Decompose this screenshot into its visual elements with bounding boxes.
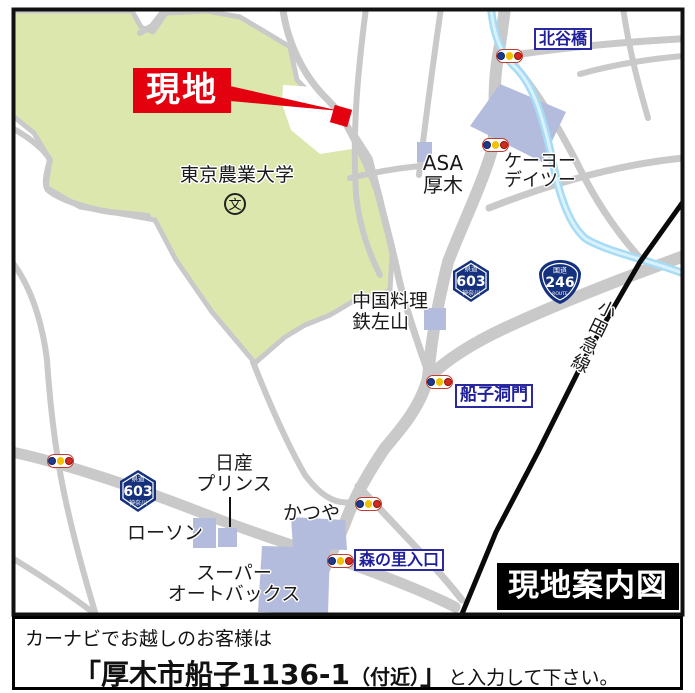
asa-label-line1: ASA xyxy=(403,153,483,175)
footer-address-paren: （付近） xyxy=(350,665,420,689)
svg-text:246: 246 xyxy=(545,275,574,291)
svg-text:603: 603 xyxy=(123,484,152,500)
china-restaurant-label: 中国料理 鉄左山 xyxy=(352,291,428,332)
katsuya-label: かつや xyxy=(283,503,340,524)
footer-address-line: 「厚木市船子1136-1（付近）」と入力して下さい。 xyxy=(73,653,680,693)
nissan-prince-label: 日産 プリンス xyxy=(196,453,272,494)
traffic-light-icon xyxy=(426,375,453,389)
traffic-light-icon xyxy=(355,497,382,511)
svg-text:603: 603 xyxy=(456,274,485,290)
footer-line1: カーナビでお越しのお客様は xyxy=(25,624,680,651)
asa-label-line2: 厚木 xyxy=(403,175,483,197)
nissan-prince-line1: 日産 xyxy=(196,453,272,474)
funako-domon-label: 船子洞門 xyxy=(455,384,533,408)
route-603-shield-icon: 県道 603 神奈川 xyxy=(451,259,491,303)
nissan-prince-line2: プリンス xyxy=(196,474,272,495)
route-603-shield-icon: 県道 603 神奈川 xyxy=(118,469,158,513)
morinosato-label: 森の里入口 xyxy=(354,549,444,571)
autobacs-line2: オートバックス xyxy=(166,584,302,605)
china-restaurant-line2: 鉄左山 xyxy=(352,312,428,333)
svg-text:県道: 県道 xyxy=(465,264,479,273)
route-246-shield-icon: 国道 246 ROUTE xyxy=(538,259,582,305)
traffic-light-icon xyxy=(327,554,354,568)
site-callout: 現地 xyxy=(133,68,231,113)
traffic-light-icon xyxy=(482,138,509,152)
university-label: 東京農業大学 xyxy=(175,165,299,186)
kitayabashi-label: 北谷橋 xyxy=(534,28,592,50)
china-restaurant-line1: 中国料理 xyxy=(352,291,428,312)
autobacs-label: スーパー オートバックス xyxy=(166,563,302,604)
nissan-building xyxy=(218,528,237,547)
svg-text:ROUTE: ROUTE xyxy=(552,291,568,297)
traffic-light-icon xyxy=(496,49,523,63)
svg-text:県道: 県道 xyxy=(132,474,146,483)
keiyo-label-line1: ケーヨー xyxy=(494,152,586,171)
asa-label: ASA 厚木 xyxy=(403,153,483,196)
footer-address-open: 「厚木市船子1136-1 xyxy=(73,658,350,691)
footer-address-suffix: と入力して下さい。 xyxy=(448,667,618,689)
traffic-light-icon xyxy=(47,454,74,468)
lawson-label: ローソン xyxy=(127,523,203,544)
keiyo-label: ケーヨー デイツー xyxy=(494,152,586,191)
page: { "map": { "site_callout": "現地", "legend… xyxy=(0,0,695,693)
school-symbol-icon: 文 xyxy=(224,193,246,215)
footer-address-close: 」 xyxy=(420,658,448,691)
nissan-pointer-line xyxy=(229,497,231,527)
map-legend-title: 現地案内図 xyxy=(497,563,679,610)
autobacs-line1: スーパー xyxy=(166,563,302,584)
keiyo-label-line2: デイツー xyxy=(494,171,586,190)
svg-text:神奈川: 神奈川 xyxy=(129,499,147,507)
svg-text:国道: 国道 xyxy=(553,266,567,275)
navigation-instruction-panel: カーナビでお越しのお客様は 「厚木市船子1136-1（付近）」と入力して下さい。 xyxy=(12,616,683,690)
svg-text:神奈川: 神奈川 xyxy=(462,289,480,297)
